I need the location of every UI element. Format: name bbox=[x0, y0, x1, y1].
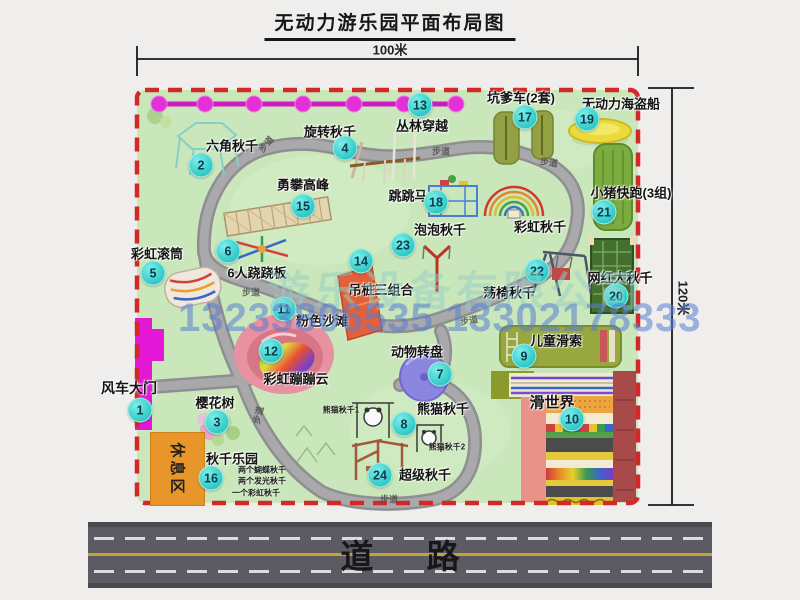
pirate-ship-icon bbox=[569, 119, 631, 146]
big-net-swing-icon bbox=[588, 236, 636, 313]
kids-zipline-icon bbox=[500, 326, 621, 367]
park-map-graphics bbox=[0, 0, 800, 600]
rest-area-label: 休息区 bbox=[167, 442, 188, 496]
road-label: 道 路 bbox=[88, 530, 712, 578]
road: 道 路 bbox=[88, 522, 712, 588]
rest-area: 休息区 bbox=[150, 432, 205, 506]
animal-carousel-icon bbox=[400, 353, 448, 401]
playground-layout-map: 无动力游乐园平面布局图 100米 120米 bbox=[0, 0, 800, 600]
pink-beach-icon bbox=[234, 314, 334, 394]
piggy-run-icon bbox=[594, 144, 632, 230]
